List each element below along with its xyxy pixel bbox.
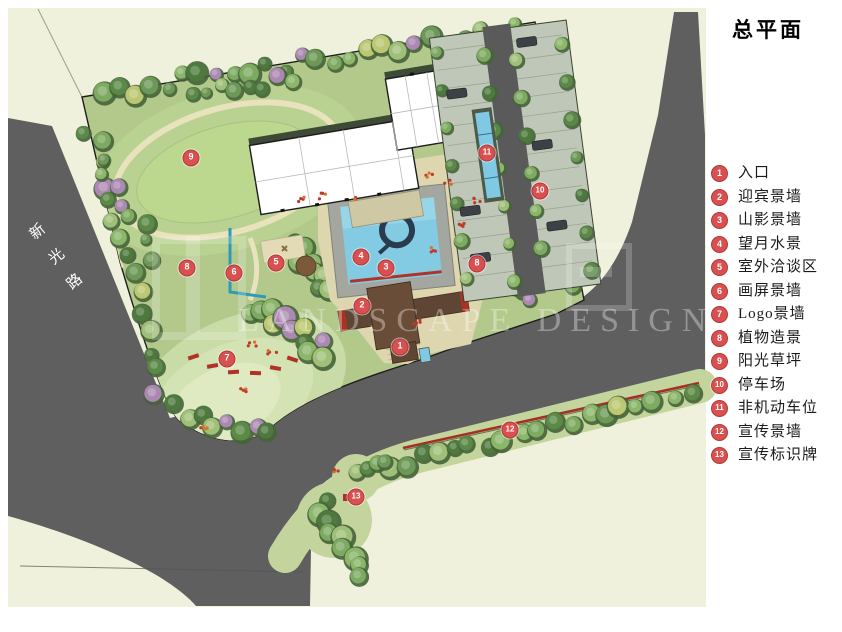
legend-item-label: 迎宾景墙 bbox=[738, 190, 802, 205]
legend-item-label: 阳光草坪 bbox=[738, 354, 802, 369]
plan-marker-7: 7 bbox=[219, 351, 236, 368]
legend-item-label: 非机动车位 bbox=[738, 401, 818, 416]
plan-marker-8: 8 bbox=[469, 256, 486, 273]
legend-item: 2迎宾景墙 bbox=[711, 186, 818, 210]
legend-number-badge: 9 bbox=[711, 353, 728, 370]
legend-item: 11非机动车位 bbox=[711, 397, 818, 421]
plan-marker-1: 1 bbox=[392, 339, 409, 356]
legend-item-label: Logo景墙 bbox=[738, 307, 806, 322]
legend-item-label: 画屏景墙 bbox=[738, 284, 802, 299]
pavilion bbox=[296, 256, 316, 276]
watermark-logo bbox=[152, 236, 246, 340]
plan-marker-6: 6 bbox=[226, 265, 243, 282]
watermark-text: LANDSCAPE DESIGN bbox=[238, 302, 708, 340]
plan-marker-9: 9 bbox=[183, 150, 200, 167]
legend-item-label: 宣传标识牌 bbox=[738, 448, 818, 463]
plan-marker-4: 4 bbox=[353, 249, 370, 266]
legend-item-label: 山影景墙 bbox=[738, 213, 802, 228]
legend-item: 7Logo景墙 bbox=[711, 303, 818, 327]
legend-item: 10停车场 bbox=[711, 374, 818, 398]
plan-marker-2: 2 bbox=[354, 298, 371, 315]
plan-marker-12: 12 bbox=[502, 422, 519, 439]
plan-marker-11: 11 bbox=[479, 145, 496, 162]
plan-marker-3: 3 bbox=[378, 260, 395, 277]
plan-marker-13: 13 bbox=[348, 489, 365, 506]
legend-item-label: 植物造景 bbox=[738, 331, 802, 346]
page-title: 总平面 bbox=[732, 14, 804, 44]
legend-number-badge: 4 bbox=[711, 236, 728, 253]
legend-item: 3山影景墙 bbox=[711, 209, 818, 233]
legend-item: 12宣传景墙 bbox=[711, 421, 818, 445]
legend-number-badge: 11 bbox=[711, 400, 728, 417]
plan-marker-10: 10 bbox=[532, 183, 549, 200]
legend-number-badge: 3 bbox=[711, 212, 728, 229]
legend-number-badge: 5 bbox=[711, 259, 728, 276]
legend-item-label: 入口 bbox=[738, 166, 770, 181]
legend-number-badge: 10 bbox=[711, 377, 728, 394]
legend-item-label: 室外洽谈区 bbox=[738, 260, 818, 275]
legend-item: 9阳光草坪 bbox=[711, 350, 818, 374]
legend-item-label: 宣传景墙 bbox=[738, 425, 802, 440]
entry-water-feature bbox=[419, 347, 431, 362]
legend-item: 1入口 bbox=[711, 162, 818, 186]
legend-item: 13宣传标识牌 bbox=[711, 444, 818, 468]
legend-item: 5室外洽谈区 bbox=[711, 256, 818, 280]
legend: 1入口2迎宾景墙3山影景墙4望月水景5室外洽谈区6画屏景墙7Logo景墙8植物造… bbox=[711, 162, 818, 468]
legend-number-badge: 8 bbox=[711, 330, 728, 347]
legend-item: 8植物造景 bbox=[711, 327, 818, 351]
plan-marker-8: 8 bbox=[179, 260, 196, 277]
legend-item-label: 望月水景 bbox=[738, 237, 802, 252]
legend-item-label: 停车场 bbox=[738, 378, 786, 393]
legend-number-badge: 1 bbox=[711, 165, 728, 182]
legend-item: 6画屏景墙 bbox=[711, 280, 818, 304]
plan-marker-5: 5 bbox=[268, 255, 285, 272]
legend-number-badge: 7 bbox=[711, 306, 728, 323]
master-plan-page: LANDSCAPE DESIGN 123456788910111213 新光路 … bbox=[0, 0, 842, 632]
legend-number-badge: 2 bbox=[711, 189, 728, 206]
legend-number-badge: 12 bbox=[711, 424, 728, 441]
legend-item: 4望月水景 bbox=[711, 233, 818, 257]
legend-number-badge: 6 bbox=[711, 283, 728, 300]
watermark-logo-2 bbox=[566, 243, 632, 311]
legend-number-badge: 13 bbox=[711, 447, 728, 464]
